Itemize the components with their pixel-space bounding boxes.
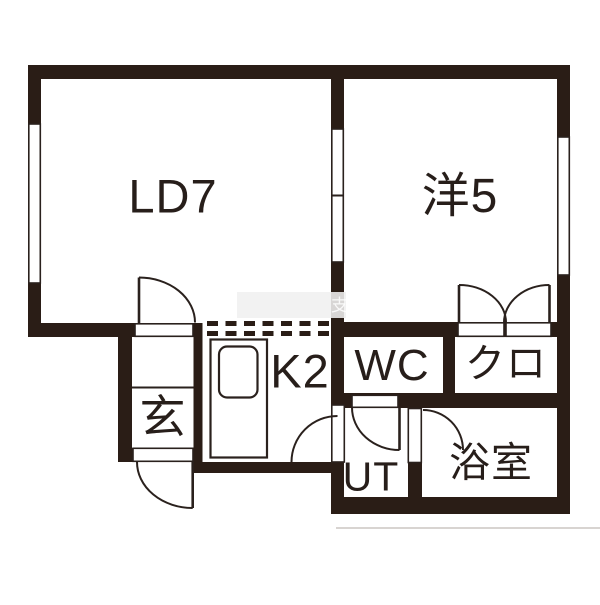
wall-wc-closet-divider bbox=[443, 337, 455, 395]
wall-right bbox=[557, 65, 570, 514]
door-arc-entrance bbox=[137, 462, 193, 508]
door-arc-ld bbox=[139, 278, 195, 323]
room-label-closet: クロ bbox=[465, 344, 547, 384]
wall-top bbox=[28, 65, 570, 79]
room-label-kitchen: K2 bbox=[270, 348, 330, 395]
wall-entrance-bottom-stub bbox=[118, 448, 134, 462]
doorway-wc bbox=[352, 395, 398, 407]
door-arc-wc bbox=[352, 408, 400, 451]
room-label-bathroom: 浴室 bbox=[449, 443, 533, 484]
watermark-band bbox=[237, 292, 346, 318]
doorway-ld bbox=[135, 324, 193, 337]
wall-ld-bottom bbox=[28, 323, 135, 337]
wall-hall-bottom bbox=[202, 462, 332, 473]
room-label-living-dining: LD7 bbox=[128, 173, 217, 220]
doorway-closet-right bbox=[506, 323, 551, 337]
floor-plan: 支 LD7 洋5 K2 WC クロ 玄 UT 浴室 bbox=[0, 0, 600, 605]
watermark-text: 支 bbox=[331, 296, 347, 316]
door-arc-ut bbox=[292, 416, 338, 462]
door-arc-closet-left bbox=[459, 285, 506, 323]
doorway-bathroom bbox=[408, 409, 421, 463]
wall-entrance-left bbox=[118, 337, 132, 462]
doorway-closet-left bbox=[458, 323, 504, 337]
doorway-entrance bbox=[133, 448, 193, 461]
wall-bottom bbox=[331, 497, 570, 514]
room-label-utility: UT bbox=[343, 457, 400, 498]
window-left bbox=[29, 124, 41, 283]
room-label-toilet: WC bbox=[354, 344, 429, 388]
room-label-entrance: 玄 bbox=[140, 394, 187, 440]
window-right bbox=[558, 137, 570, 275]
kitchen-sink bbox=[219, 347, 258, 398]
door-arc-closet-right bbox=[504, 285, 550, 323]
room-label-western-room: 洋5 bbox=[422, 173, 499, 221]
wall-entrance-hall-divider bbox=[194, 323, 203, 473]
